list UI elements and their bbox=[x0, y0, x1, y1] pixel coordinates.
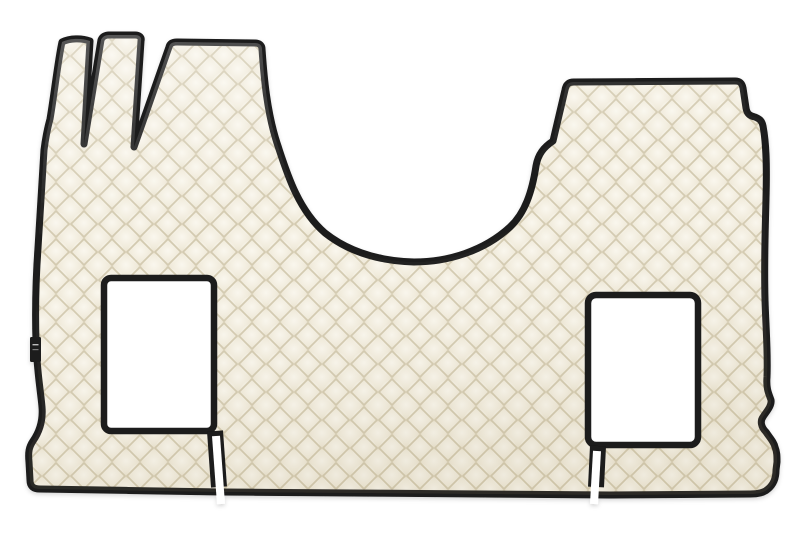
brand-tag-mark bbox=[33, 344, 39, 345]
floor-mat-illustration bbox=[0, 0, 800, 533]
right-slit-gap bbox=[594, 451, 597, 504]
left-slit-gap bbox=[216, 436, 221, 504]
right-seat-cutout bbox=[588, 295, 698, 445]
product-photo bbox=[0, 0, 800, 533]
brand-tag-mark bbox=[33, 349, 39, 350]
left-seat-cutout bbox=[104, 278, 214, 431]
